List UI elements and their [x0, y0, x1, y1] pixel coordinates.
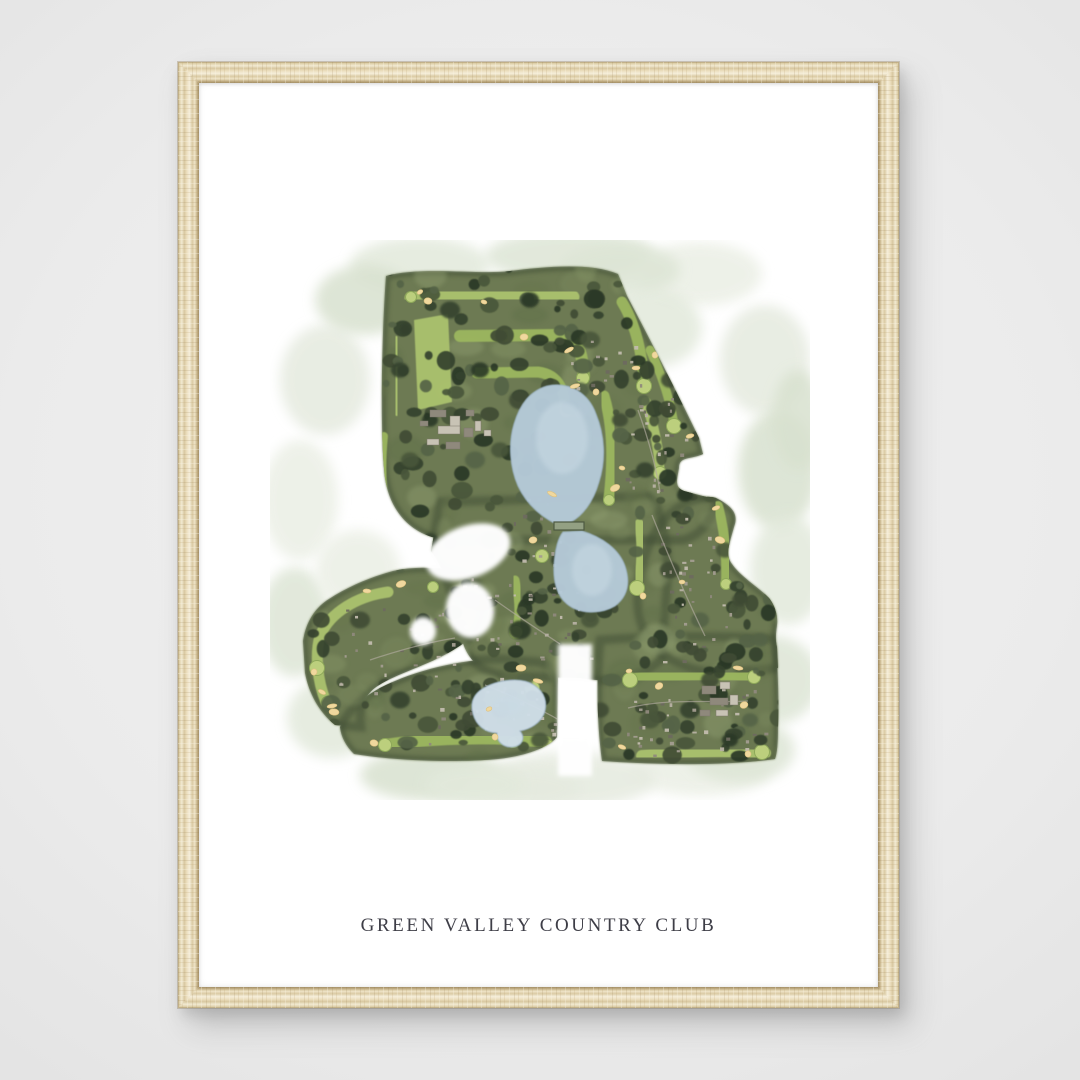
- frame-side-right: [878, 62, 899, 1008]
- print-title: GREEN VALLEY COUNTRY CLUB: [199, 915, 878, 937]
- frame-side-bottom: [178, 987, 899, 1008]
- golf-course-map-artwork: [270, 240, 810, 800]
- picture-frame: GREEN VALLEY COUNTRY CLUB: [178, 62, 899, 1008]
- wall-background: GREEN VALLEY COUNTRY CLUB: [0, 0, 1080, 1080]
- golf-course-map-svg: [270, 240, 810, 800]
- scene-root: { "print": { "title": "GREEN VALLEY COUN…: [0, 0, 1080, 1080]
- frame-side-left: [178, 62, 199, 1008]
- print-paper: GREEN VALLEY COUNTRY CLUB: [199, 83, 878, 987]
- frame-side-top: [178, 62, 899, 83]
